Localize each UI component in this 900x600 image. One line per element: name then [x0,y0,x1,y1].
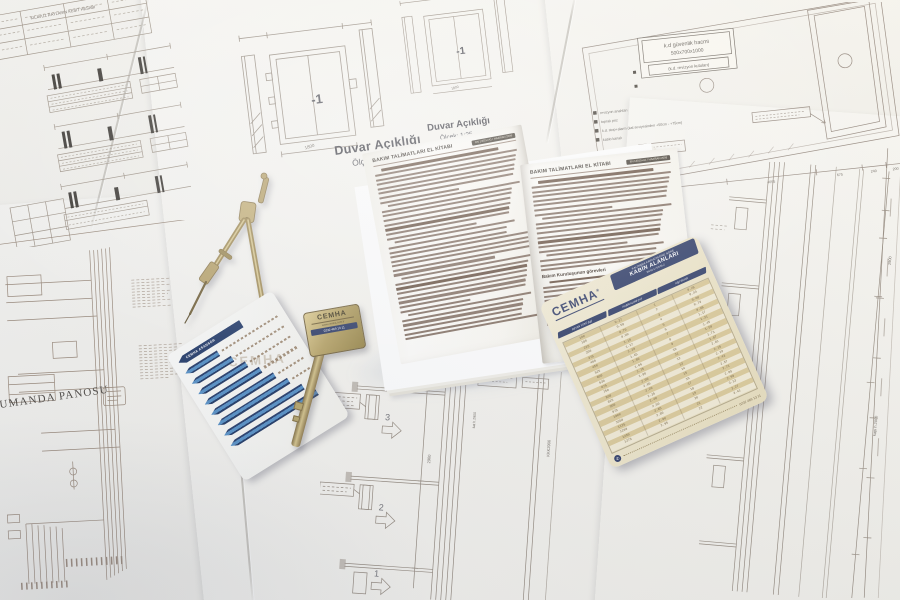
registered-mark: ® [595,287,601,293]
section-dim: kat h.2900 [472,412,477,429]
plan-legend-item: toprak priz [601,118,618,124]
key-head: CEMHA www.cemha.com.tr 0232 469 13 11 [303,303,367,357]
level-label: -1 [310,91,323,107]
dimension-label: 1800 [451,85,460,91]
plan-legend-item: revizyon anahtarı [600,108,628,115]
floor-number: 3 [385,412,391,422]
level-label: -1 [456,46,467,58]
floor-number: 1 [374,568,380,578]
brass-key: CEMHA www.cemha.com.tr 0232 469 13 11 [272,300,382,455]
section-dim: 2900 [426,454,432,464]
key-shaft [291,347,326,448]
dimension-strip-drawing [852,148,900,598]
dimension-label: 1800 [304,143,316,151]
section-dim: KKK2900 [545,439,551,457]
key-bit [292,415,300,423]
key-bit [293,401,304,411]
floor-number: 2 [378,502,384,512]
phone-icon: ✆ [613,454,622,463]
desk-scene-photo: KILAVUZ RAYLARIN KESİT HESABI [0,0,900,600]
